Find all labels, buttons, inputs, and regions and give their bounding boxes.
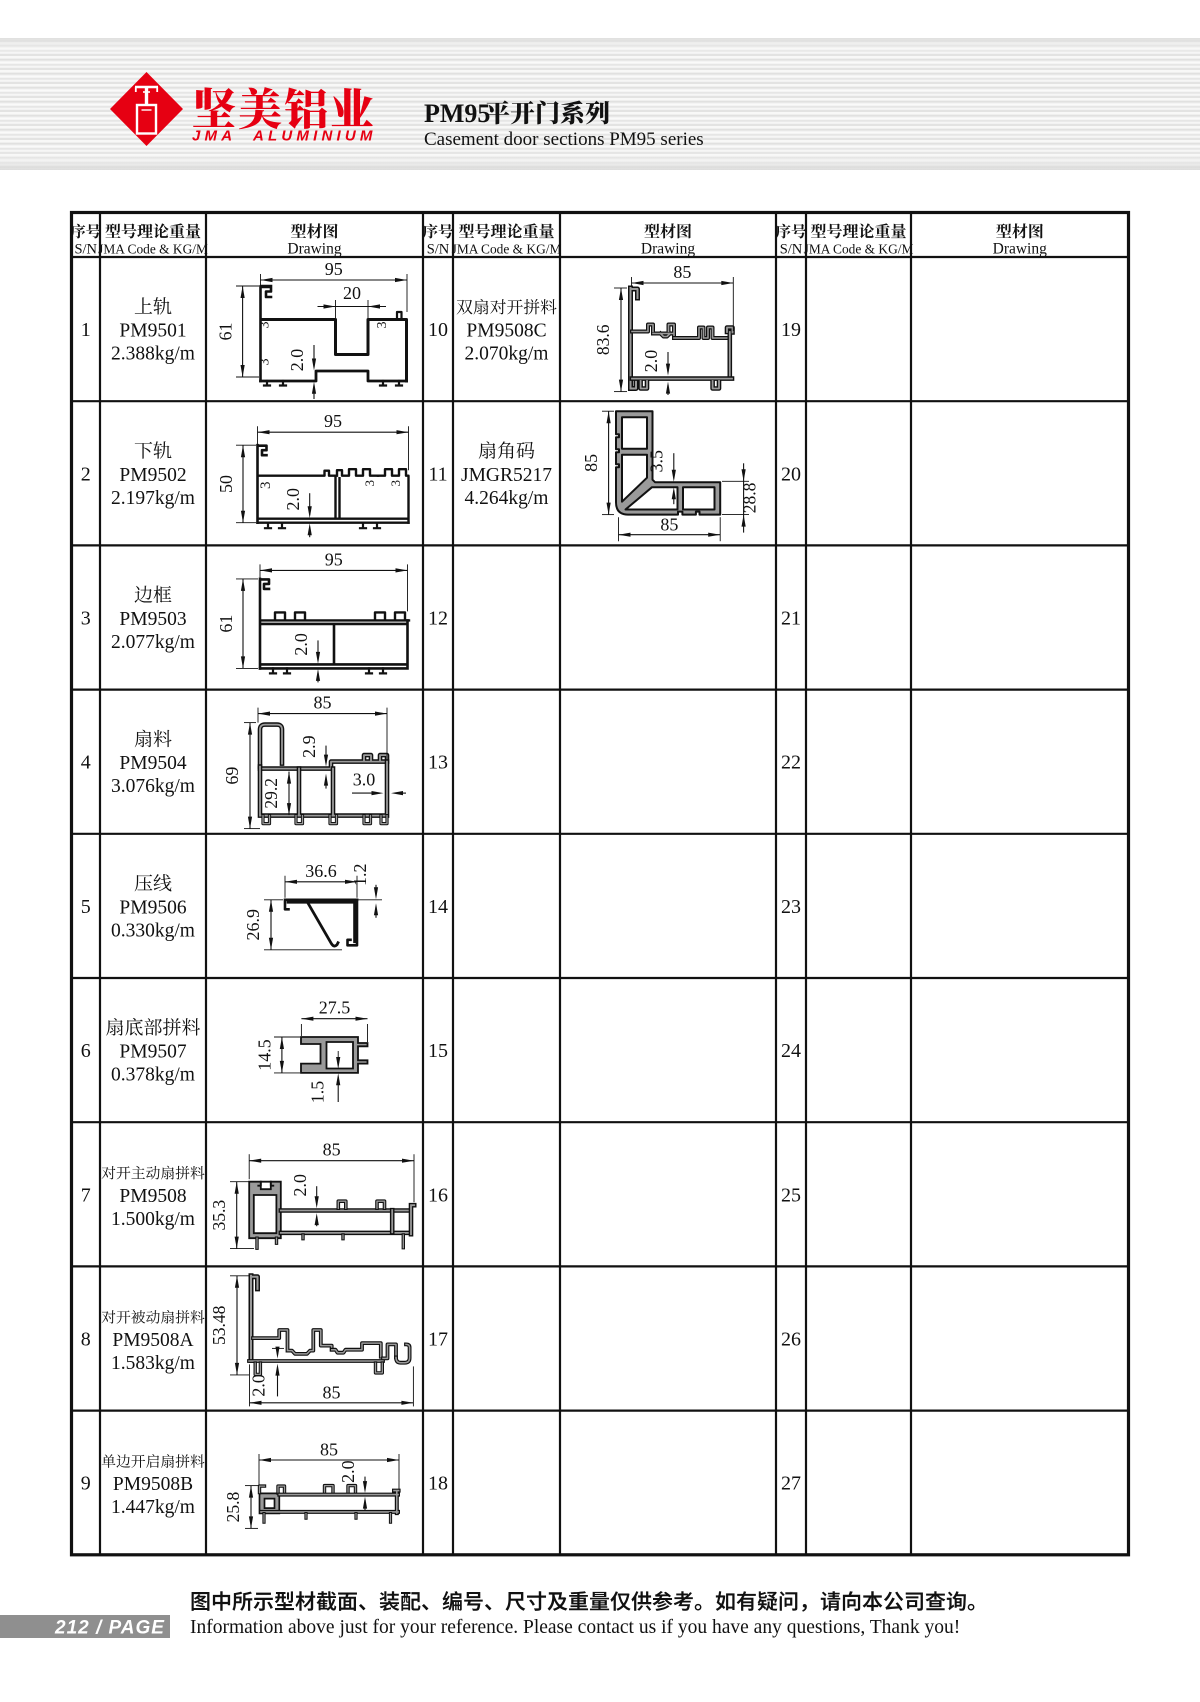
- svg-text:Information above just for you: Information above just for your referenc…: [190, 1617, 960, 1638]
- svg-text:PM9508: PM9508: [119, 1186, 186, 1207]
- svg-text:S/N: S/N: [74, 242, 97, 258]
- svg-text:26.9: 26.9: [243, 909, 263, 941]
- svg-text:2.077kg/m: 2.077kg/m: [111, 632, 195, 653]
- svg-text:28.8: 28.8: [740, 482, 760, 513]
- svg-text:3.0: 3.0: [353, 770, 376, 790]
- svg-text:3: 3: [388, 480, 403, 487]
- svg-text:Casement door sections PM95 se: Casement door sections PM95 series: [424, 129, 704, 150]
- svg-text:29.2: 29.2: [261, 778, 281, 809]
- svg-text:4.264kg/m: 4.264kg/m: [465, 488, 549, 509]
- svg-text:85: 85: [320, 1440, 338, 1460]
- svg-text:3: 3: [81, 608, 91, 630]
- svg-text:PM9501: PM9501: [119, 321, 186, 342]
- svg-text:3.5: 3.5: [647, 450, 667, 473]
- svg-text:2.0: 2.0: [291, 633, 311, 656]
- svg-text:7: 7: [81, 1184, 91, 1206]
- svg-text:20: 20: [781, 463, 801, 485]
- svg-text:212 / PAGE: 212 / PAGE: [54, 1618, 165, 1639]
- svg-text:1.447kg/m: 1.447kg/m: [111, 1497, 195, 1518]
- svg-text:27: 27: [781, 1473, 801, 1495]
- svg-text:2.0: 2.0: [641, 350, 661, 373]
- svg-text:S/N: S/N: [427, 242, 450, 258]
- svg-text:2: 2: [81, 463, 91, 485]
- svg-text:23: 23: [781, 896, 801, 918]
- svg-text:1.583kg/m: 1.583kg/m: [111, 1353, 195, 1374]
- svg-text:JMA Code & KG/M: JMA Code & KG/M: [98, 242, 208, 257]
- svg-text:24: 24: [781, 1040, 801, 1062]
- svg-text:95: 95: [325, 549, 343, 569]
- svg-text:85: 85: [323, 1140, 341, 1160]
- svg-text:PM95: PM95: [424, 99, 490, 128]
- svg-text:10: 10: [428, 319, 448, 341]
- svg-text:85: 85: [581, 454, 601, 472]
- svg-text:5: 5: [81, 896, 91, 918]
- svg-text:50: 50: [216, 475, 236, 493]
- svg-text:PM9502: PM9502: [119, 465, 186, 486]
- svg-text:19: 19: [781, 319, 801, 341]
- svg-text:69: 69: [222, 767, 242, 785]
- svg-text:61: 61: [216, 615, 236, 633]
- svg-text:85: 85: [673, 262, 691, 282]
- svg-text:Drawing: Drawing: [993, 241, 1047, 258]
- svg-text:16: 16: [428, 1184, 448, 1206]
- svg-text:4: 4: [81, 752, 91, 774]
- svg-text:26: 26: [781, 1329, 801, 1351]
- svg-text:Drawing: Drawing: [641, 241, 695, 258]
- svg-text:2.0: 2.0: [283, 488, 303, 511]
- svg-text:JMA Code & KG/M: JMA Code & KG/M: [804, 242, 914, 257]
- svg-text:PM9503: PM9503: [119, 609, 186, 630]
- svg-text:85: 85: [322, 1382, 340, 1402]
- svg-text:3: 3: [258, 481, 274, 489]
- svg-text:21: 21: [781, 608, 801, 630]
- svg-text:PM9504: PM9504: [119, 753, 186, 774]
- svg-text:61: 61: [216, 323, 236, 341]
- svg-text:2.070kg/m: 2.070kg/m: [465, 344, 549, 365]
- svg-text:14.5: 14.5: [255, 1039, 275, 1071]
- svg-text:0.378kg/m: 0.378kg/m: [111, 1065, 195, 1086]
- svg-text:95: 95: [325, 259, 343, 279]
- svg-text:JMA ALUMINIUM: JMA ALUMINIUM: [192, 128, 377, 145]
- svg-text:3.076kg/m: 3.076kg/m: [111, 776, 195, 797]
- svg-text:6: 6: [81, 1040, 91, 1062]
- svg-text:PM9508C: PM9508C: [466, 321, 546, 342]
- svg-text:1.5: 1.5: [308, 1081, 328, 1104]
- svg-text:Drawing: Drawing: [287, 241, 341, 258]
- svg-text:27.5: 27.5: [319, 998, 351, 1018]
- svg-text:PM9507: PM9507: [119, 1042, 186, 1063]
- svg-text:95: 95: [324, 411, 342, 431]
- svg-text:85: 85: [660, 515, 678, 535]
- svg-text:35.3: 35.3: [209, 1200, 229, 1231]
- svg-text:25: 25: [781, 1184, 801, 1206]
- svg-text:17: 17: [428, 1329, 448, 1351]
- svg-text:14: 14: [428, 896, 448, 918]
- svg-text:13: 13: [428, 752, 448, 774]
- svg-text:12: 12: [428, 608, 448, 630]
- svg-text:PM9508A: PM9508A: [112, 1330, 193, 1351]
- svg-text:8: 8: [81, 1329, 91, 1351]
- svg-text:85: 85: [314, 693, 332, 713]
- svg-text:JMA Code & KG/M: JMA Code & KG/M: [452, 242, 562, 257]
- svg-text:JMGR5217: JMGR5217: [461, 465, 552, 486]
- svg-text:1: 1: [81, 319, 91, 341]
- svg-text:S/N: S/N: [780, 242, 803, 258]
- svg-text:22: 22: [781, 752, 801, 774]
- svg-text:25.8: 25.8: [223, 1491, 243, 1522]
- svg-text:2.0: 2.0: [338, 1460, 358, 1483]
- svg-text:PM9506: PM9506: [119, 897, 186, 918]
- svg-text:2.0: 2.0: [287, 349, 307, 372]
- svg-text:3: 3: [362, 480, 377, 487]
- svg-text:0.330kg/m: 0.330kg/m: [111, 920, 195, 941]
- svg-text:1.500kg/m: 1.500kg/m: [111, 1209, 195, 1230]
- svg-text:1.2: 1.2: [350, 864, 370, 887]
- svg-text:20: 20: [343, 283, 361, 303]
- svg-text:2.388kg/m: 2.388kg/m: [111, 344, 195, 365]
- svg-text:3: 3: [375, 322, 390, 329]
- svg-text:3: 3: [258, 322, 273, 329]
- svg-text:15: 15: [428, 1040, 448, 1062]
- svg-text:2.197kg/m: 2.197kg/m: [111, 488, 195, 509]
- svg-text:2.9: 2.9: [299, 735, 319, 758]
- svg-text:18: 18: [428, 1473, 448, 1495]
- svg-text:2.0: 2.0: [249, 1374, 269, 1397]
- svg-text:3: 3: [258, 359, 273, 366]
- svg-text:53.48: 53.48: [209, 1305, 229, 1345]
- svg-text:11: 11: [428, 463, 447, 485]
- svg-text:83.6: 83.6: [593, 324, 613, 355]
- svg-text:36.6: 36.6: [305, 861, 337, 881]
- svg-text:PM9508B: PM9508B: [113, 1474, 193, 1495]
- svg-text:9: 9: [81, 1473, 91, 1495]
- svg-text:2.0: 2.0: [290, 1174, 310, 1197]
